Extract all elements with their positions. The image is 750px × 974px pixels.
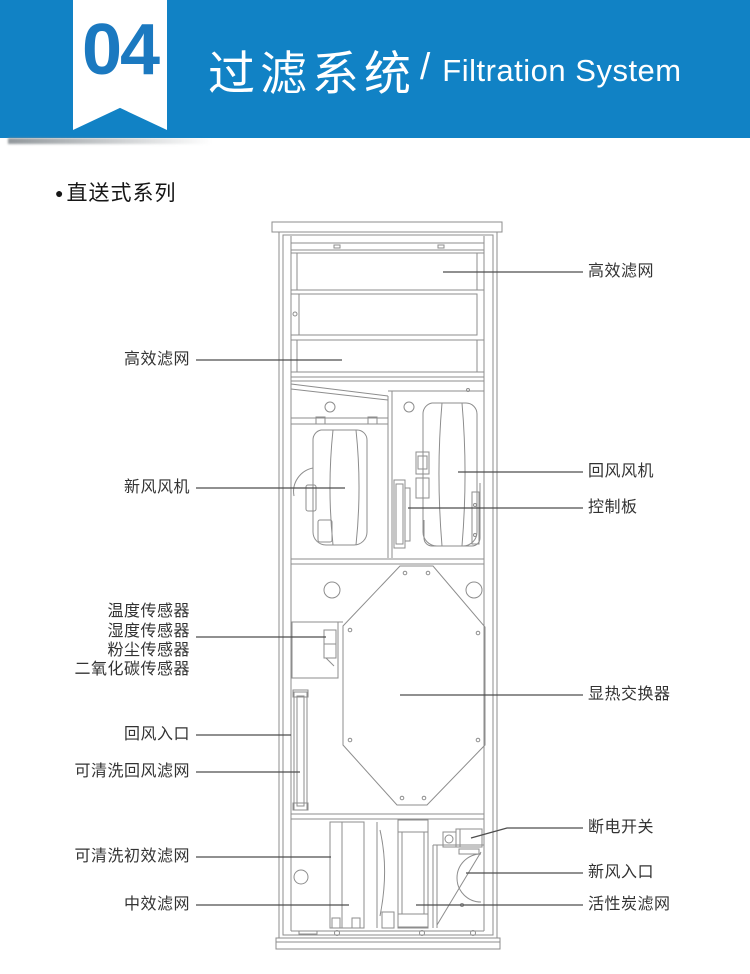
label-co2-sensor: 二氧化碳传感器 <box>74 661 190 679</box>
label-activated-carbon-filter: 活性炭滤网 <box>588 896 671 914</box>
label-control-board: 控制板 <box>588 499 638 517</box>
label-humidity-sensor: 湿度传感器 <box>107 623 190 641</box>
label-temperature-sensor: 温度传感器 <box>107 603 190 621</box>
label-medium-filter: 中效滤网 <box>124 896 190 914</box>
unit-outline-drawing <box>272 222 502 949</box>
label-fresh-air-fan: 新风风机 <box>124 479 190 497</box>
label-heat-exchanger: 显热交换器 <box>588 686 671 704</box>
label-power-switch: 断电开关 <box>588 819 654 837</box>
label-hepa-filter-left: 高效滤网 <box>124 351 190 369</box>
label-washable-return-filter: 可清洗回风滤网 <box>74 763 190 781</box>
label-fresh-air-inlet: 新风入口 <box>588 864 654 882</box>
label-washable-primary-filter: 可清洗初效滤网 <box>74 848 190 866</box>
leader-lines <box>196 272 583 905</box>
label-return-air-inlet: 回风入口 <box>124 726 190 744</box>
label-return-air-fan: 回风风机 <box>588 463 654 481</box>
leader-power-switch <box>471 828 583 838</box>
label-hepa-filter-right: 高效滤网 <box>588 263 654 281</box>
label-dust-sensor: 粉尘传感器 <box>107 642 190 660</box>
